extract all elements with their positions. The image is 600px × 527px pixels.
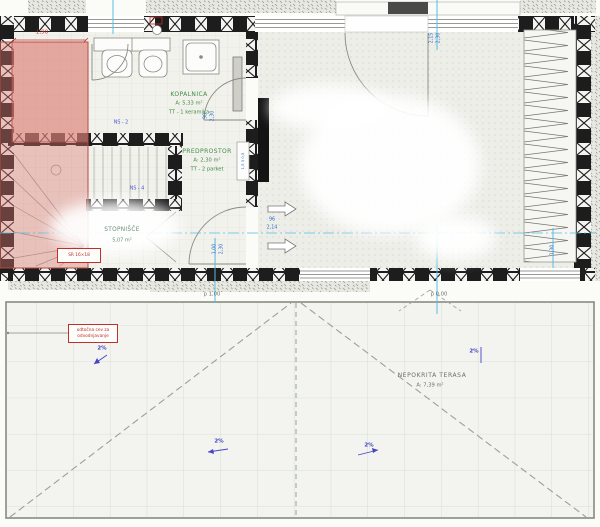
dim-passage-length: 2,14 — [267, 227, 278, 232]
dim-window-a: 2,15 — [431, 33, 436, 44]
slope-label-4: 2% — [469, 349, 478, 355]
dim-closet-width: 1,90 — [36, 30, 48, 36]
level-entry: p 1,00 — [204, 292, 221, 297]
watermark-blur — [270, 85, 390, 130]
radiator-icon — [233, 57, 242, 111]
dim-door-width: 90 — [205, 113, 210, 119]
pipe-circle — [153, 26, 162, 35]
installation-shaft — [258, 98, 269, 182]
insulation-hatch — [520, 0, 596, 13]
mark-ns2: NS - 2 — [114, 122, 128, 127]
slope-label-3: 2% — [364, 443, 373, 449]
shower-drain — [200, 56, 203, 59]
terrace-note-line2: odvodnjavanje — [77, 334, 109, 339]
window-main-1 — [255, 16, 345, 32]
dim-window2-width: 1,30 — [552, 245, 557, 256]
room-label-terasa: NEPOKRITA TERASA — [398, 373, 467, 379]
dim-passage-width: 96 — [269, 219, 275, 224]
level-terrace: p 0,00 — [431, 292, 448, 297]
mark-ns4: NS - 4 — [130, 188, 144, 193]
dim-door2-width: 1,00 — [214, 244, 219, 255]
slope-label-2: 2% — [214, 439, 223, 445]
insulation-hatch — [28, 0, 86, 13]
room-area-predprostor: A: 2,30 m² — [193, 158, 220, 163]
floor-plan-drawing — [0, 0, 600, 527]
insulation-hatch — [150, 281, 370, 292]
dim-window-b: 2,30 — [438, 33, 443, 44]
door-opening-top — [345, 16, 428, 32]
insulation-hatch — [591, 16, 600, 281]
dim-door2-height: 2,30 — [221, 244, 226, 255]
insulation-hatch — [146, 0, 336, 13]
room-label-stopnisce: STOPNIŠČE — [104, 228, 139, 234]
attic-ladder-strip — [524, 30, 576, 262]
stair-note-box: SR 16×18 — [57, 248, 101, 263]
room-area-terasa: A: 7,39 m² — [416, 383, 443, 388]
stairwell-right-wall — [168, 146, 182, 206]
dim-door-height: 2,30 — [212, 111, 217, 122]
stair-note-text: SR 16×18 — [68, 253, 90, 258]
window-main-2 — [428, 16, 518, 32]
window-bottom-1 — [300, 268, 370, 281]
window-bathroom — [88, 16, 144, 32]
room-label-kopalnica: KOPALNICA — [170, 92, 207, 98]
insulation-hatch — [8, 281, 150, 290]
window-bottom-2 — [520, 268, 580, 281]
room-label-predprostor: PREDPROSTOR — [182, 149, 231, 155]
dim-wall-layers: 1,5 3 0,5 — [241, 153, 245, 170]
floor-plan-sheet: KOPALNICA A: 5,33 m² TT - 1 keramika PRE… — [0, 0, 600, 527]
room-area-kopalnica: A: 5,33 m² — [175, 101, 202, 106]
slope-label-1: 2% — [97, 346, 106, 352]
room-finish-predprostor: TT - 2 parket — [190, 167, 223, 172]
middle-wall — [246, 32, 258, 78]
room-area-stopnisce: 5,07 m² — [112, 239, 132, 244]
canopy-box — [388, 2, 428, 14]
terrace-note-box: odtočna cev za odvodnjavanje — [68, 324, 118, 343]
watermark-blur — [415, 215, 495, 260]
bidet-bowl — [144, 56, 162, 72]
